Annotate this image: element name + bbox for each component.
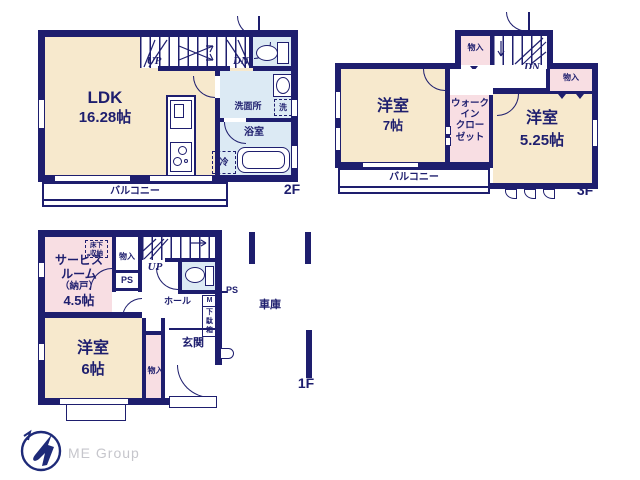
entrance-door-handle [220,348,234,359]
ldk-label: LDK [75,88,135,108]
floor1-label: 1F [292,375,320,392]
me-group-logo: ME Group [18,427,178,475]
laundry-label: 洗 [274,103,292,112]
room-size-label: 7帖 [367,118,419,133]
window [55,175,130,182]
garage-wall [249,232,255,264]
wall [38,230,222,237]
window [335,92,341,118]
window [335,128,341,150]
wall [38,230,45,405]
shutter-door-mark [505,189,517,199]
toilet-bowl-icon [185,267,205,283]
stair-lines-1f [142,237,215,260]
folding-door-mark [576,94,584,99]
balcony-rail [340,186,488,188]
hall-label: ホール [155,296,200,307]
service-room-label: サービス [52,253,106,267]
fridge-label: 冷 [212,157,236,168]
window [150,175,212,182]
window [38,100,45,128]
wall [249,37,253,68]
garage-wall [306,330,312,378]
storage-label: 物入 [459,43,492,52]
entrance-label: 玄関 [176,337,210,350]
wall [112,270,142,273]
room-label: 洋室 [363,98,423,117]
wall [215,230,222,365]
bathtub-inner [242,151,285,169]
washroom-label: 洗面所 [222,101,274,112]
window [60,398,128,405]
storage-label: 物入 [550,73,592,82]
folding-door-mark [558,94,566,99]
floor2-label: 2F [278,181,306,198]
entrance-step-line [169,328,215,330]
balcony-label: バルコニー [97,186,173,198]
shutter-door-mark [543,189,555,199]
faucet-icon [174,104,184,118]
wall [550,91,592,94]
balcony-label: バルコニー [382,172,446,184]
door-arc [506,12,528,32]
ps-label: PS [114,275,140,286]
ps-right-label: PS [226,285,246,296]
shutter-door-mark [524,189,536,199]
toilet-icon [277,42,289,64]
floor3-label: 3F [571,182,599,199]
bath-label: 浴室 [232,127,276,139]
window [38,344,45,360]
service-room-size: 4.5帖 [56,293,102,308]
storage-label: 物入 [139,366,172,375]
burner-icon [184,159,188,163]
door-leaf [528,12,530,32]
wall [165,258,215,262]
wic-label: ウォーク イン クロー ゼット [448,98,492,143]
wall [38,30,298,37]
wall [161,318,165,398]
window [38,263,45,277]
stairs-up-label: UP [141,55,167,68]
toilet-icon [205,266,214,286]
burner-icon [173,157,182,166]
room-size-label: 5.25帖 [505,132,579,150]
window [592,120,598,146]
toilet-bowl-icon [256,45,278,61]
wall [142,318,146,398]
room-label: 洋室 [512,110,572,129]
hall-3f [450,69,547,88]
me-group-logo-icon [18,427,64,473]
balcony-rail [44,199,226,201]
porch-step [169,396,217,408]
window [291,146,298,168]
sink-basin-icon [276,77,290,94]
me-group-logo-text: ME Group [68,445,173,462]
storage-label: 物入 [112,252,142,261]
window [291,100,298,116]
garage-wall [305,232,311,264]
wall [112,288,142,291]
room-size-label: 6帖 [68,361,118,379]
ldk-size-label: 16.28帖 [63,109,147,127]
garage-label: 車庫 [247,299,293,312]
terrace-step [66,405,126,421]
burner-icon [178,146,187,155]
door-opening [215,76,220,98]
floorplan-canvas: UP DN 洗面所 洗 浴室 冷 [0,0,640,480]
room-label: 洋室 [64,340,122,359]
